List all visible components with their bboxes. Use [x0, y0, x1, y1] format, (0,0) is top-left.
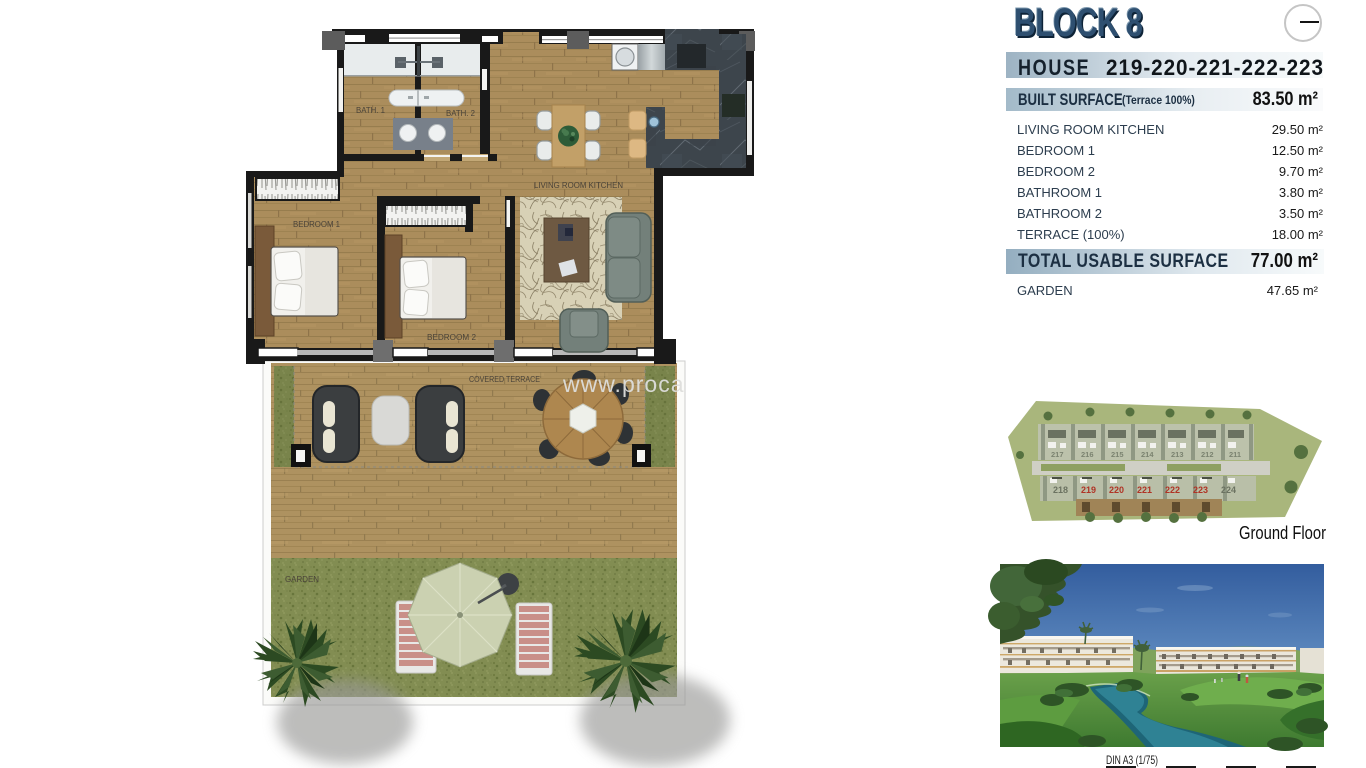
svg-text:219: 219	[1081, 485, 1096, 495]
svg-text:211: 211	[1229, 450, 1241, 459]
svg-text:214: 214	[1141, 450, 1154, 459]
svg-text:222: 222	[1165, 485, 1180, 495]
svg-text:221: 221	[1137, 485, 1152, 495]
svg-text:223: 223	[1193, 485, 1208, 495]
svg-text:DIN A3 (1/75): DIN A3 (1/75)	[1106, 753, 1158, 767]
svg-text:220: 220	[1109, 485, 1124, 495]
svg-text:217: 217	[1051, 450, 1064, 459]
svg-text:216: 216	[1081, 450, 1094, 459]
svg-text:213: 213	[1171, 450, 1184, 459]
svg-text:212: 212	[1201, 450, 1214, 459]
svg-text:218: 218	[1053, 485, 1068, 495]
svg-text:215: 215	[1111, 450, 1124, 459]
svg-text:224: 224	[1221, 485, 1236, 495]
svg-text:Ground Floor: Ground Floor	[1239, 523, 1326, 543]
